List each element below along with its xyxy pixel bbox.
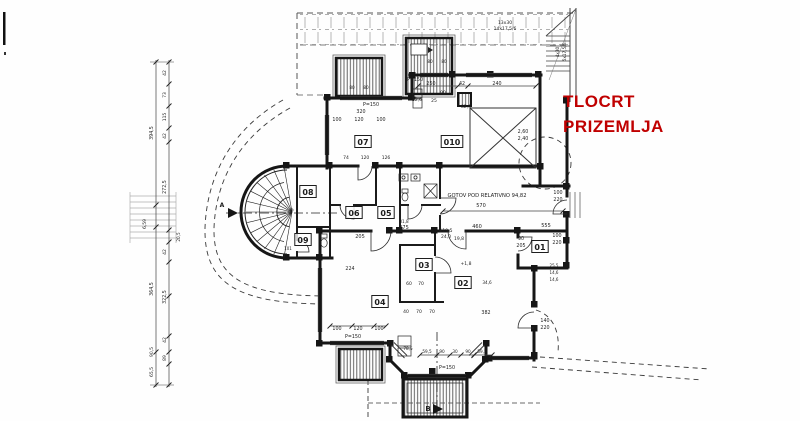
room-label-04: 04	[372, 296, 388, 308]
dim-text: 31,8	[399, 219, 409, 224]
dim-text: 220	[552, 240, 561, 246]
dim-text: GOTOV POD RELATIVNO 94,82	[447, 193, 526, 199]
dim-text: 24,0	[441, 234, 451, 240]
dim-text: 224	[345, 266, 354, 272]
section-marker-a	[228, 208, 238, 218]
door-swings	[297, 166, 567, 328]
dim-text: 90	[440, 90, 446, 96]
room-label-09: 09	[295, 234, 311, 246]
svg-text:05: 05	[380, 209, 392, 218]
dim-text: 13x30	[498, 20, 512, 26]
dim-text: 14x17,5/6	[494, 26, 517, 32]
dim-text: 42	[162, 70, 168, 76]
dim-text: 100	[374, 326, 383, 332]
dim-text: 90	[439, 349, 445, 354]
svg-text:07: 07	[357, 138, 368, 147]
dim-text: 120	[353, 326, 362, 332]
dim-text: 320	[356, 109, 365, 115]
room-label-02: 02	[455, 277, 471, 289]
dim-text: 19,8	[454, 236, 464, 242]
dim-text: 100	[552, 233, 561, 239]
dim-text: 70	[416, 309, 422, 315]
dim-text: 101	[284, 246, 292, 251]
dim-text: 90,5	[149, 347, 155, 357]
dim-text: 140	[540, 318, 549, 324]
dim-text: 42	[459, 81, 465, 87]
dim-text: 2,40	[518, 136, 529, 142]
svg-text:03: 03	[418, 261, 429, 270]
svg-text:02: 02	[457, 279, 468, 288]
dim-text: 25,5	[550, 263, 559, 268]
dim-text: 42	[162, 249, 168, 255]
room-label-01: 01	[532, 241, 548, 253]
terrace-southwest	[336, 346, 385, 383]
dim-text: 14,6	[550, 270, 559, 275]
dim-text: 240	[492, 81, 501, 87]
dim-text: 126	[382, 155, 391, 161]
dim-text: 120	[354, 117, 363, 123]
dim-text: 20,5	[176, 232, 181, 242]
bath-fixtures	[321, 89, 437, 356]
entrance-steps	[570, 192, 580, 218]
dim-text: 120	[361, 155, 370, 161]
dim-text: 82,6	[461, 104, 471, 110]
dim-text: 6,59	[142, 219, 148, 229]
dim-text: 100	[332, 326, 341, 332]
dim-text: B	[425, 405, 430, 413]
dim-text: 78,5	[403, 346, 413, 351]
dim-text: 555	[541, 223, 551, 229]
dim-text: 364,5	[149, 282, 155, 296]
dim-text: 100	[553, 190, 562, 196]
dim-text: 115	[162, 113, 168, 122]
dim-text: 5x17,5/6	[562, 42, 567, 61]
dim-text: 90	[518, 236, 524, 242]
dim-text: 80	[349, 85, 355, 90]
floorplan-scan: GOTOV POD RELATIVNO 94,82570460555275205…	[0, 0, 800, 421]
room-label-06: 06	[346, 207, 362, 219]
svg-text:010: 010	[444, 138, 461, 147]
dim-text: 73	[162, 92, 168, 98]
dim-text: 80	[363, 85, 369, 90]
dim-text: 59,5	[477, 349, 487, 354]
scan-artifact	[3, 12, 6, 55]
dim-text: 40	[403, 309, 409, 315]
dim-text: 60	[406, 281, 412, 287]
floorplan-drawing: GOTOV POD RELATIVNO 94,82570460555275205…	[0, 0, 800, 421]
dim-text: 30	[452, 349, 458, 354]
dim-text: 220	[540, 325, 549, 331]
dim-text: P=150	[363, 102, 379, 108]
room-label-010: 010	[441, 136, 463, 148]
dim-text: 460	[472, 224, 482, 230]
dim-text: 220	[553, 197, 562, 203]
dim-text: 100	[376, 117, 385, 123]
dim-text: 80	[427, 59, 433, 64]
dim-text: 119,5	[440, 228, 453, 234]
dim-text: 100	[332, 117, 341, 123]
svg-text:01: 01	[534, 243, 546, 252]
svg-text:04: 04	[374, 298, 386, 307]
dim-text: 394,5	[149, 126, 155, 140]
dim-text: 65,5	[149, 367, 155, 377]
terrace-block-northwest	[333, 55, 385, 99]
dim-text: A	[220, 202, 225, 209]
dim-text: 42	[162, 337, 168, 343]
dim-text: 70	[418, 281, 424, 287]
dim-text: 52,6	[412, 97, 422, 103]
dim-text: 74	[343, 155, 349, 161]
dim-text: 275	[399, 225, 409, 231]
dim-text: 90	[465, 349, 471, 354]
windows	[318, 73, 532, 377]
dim-text: 89	[162, 355, 168, 361]
dim-text: 382	[481, 310, 490, 316]
room-label-07: 07	[355, 136, 371, 148]
dim-text: 2,60	[518, 129, 529, 135]
dim-text: 205	[516, 243, 525, 249]
dim-text: 14,6	[550, 277, 559, 282]
room-label-05: 05	[378, 207, 394, 219]
dim-text: 322,5	[162, 290, 168, 304]
dim-text: 4x30	[555, 46, 560, 57]
room-label-08: 08	[300, 186, 316, 198]
dim-text: 42	[162, 133, 168, 139]
drawing-title-line2: PRIZEMLJA	[563, 115, 664, 140]
dim-text: 34,6	[482, 280, 492, 285]
dim-text: P=150	[439, 365, 455, 371]
dim-text: 59,5	[422, 349, 432, 354]
svg-text:09: 09	[297, 236, 309, 245]
svg-text:08: 08	[302, 188, 314, 197]
dim-text: 272,5	[162, 180, 168, 194]
dim-text: 250	[426, 81, 435, 87]
dim-text: +1,8	[461, 261, 472, 267]
dim-text: 70	[429, 309, 435, 315]
dim-text: 570	[476, 203, 486, 209]
drawing-title: TLOCRT PRIZEMLJA	[563, 90, 664, 139]
dim-text: 205	[355, 234, 365, 240]
room-label-03: 03	[416, 259, 432, 271]
dim-text: 25	[431, 98, 437, 104]
svg-text:06: 06	[348, 209, 360, 218]
dim-text: P=150	[345, 334, 361, 340]
dim-text: P=150	[407, 77, 423, 83]
dim-text: 80	[441, 59, 447, 64]
drawing-title-line1: TLOCRT	[563, 90, 664, 115]
